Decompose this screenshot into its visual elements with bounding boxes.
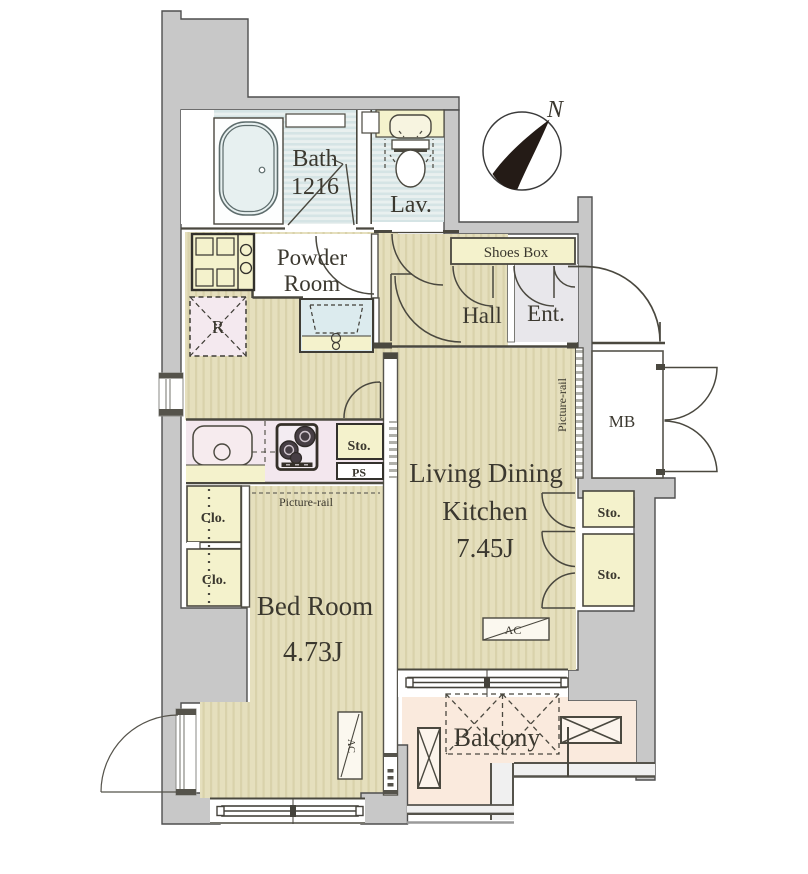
svg-text:AC: AC xyxy=(505,623,522,637)
svg-text:Lav.: Lav. xyxy=(390,192,432,218)
svg-text:Shoes Box: Shoes Box xyxy=(484,245,549,261)
svg-text:7.45J: 7.45J xyxy=(456,533,514,563)
svg-text:Room: Room xyxy=(284,271,340,296)
svg-text:AC: AC xyxy=(345,739,356,753)
svg-text:1216: 1216 xyxy=(291,174,339,200)
svg-text:Ent.: Ent. xyxy=(527,301,565,326)
svg-text:Bed Room: Bed Room xyxy=(257,591,373,621)
svg-text:Kitchen: Kitchen xyxy=(442,496,528,526)
svg-text:PS: PS xyxy=(352,466,366,480)
svg-text:4.73J: 4.73J xyxy=(283,637,343,668)
svg-text:Living Dining: Living Dining xyxy=(409,458,563,488)
svg-text:Bath: Bath xyxy=(292,146,337,172)
svg-text:Hall: Hall xyxy=(462,303,502,328)
svg-text:Clo.: Clo. xyxy=(201,511,226,526)
svg-text:Clo.: Clo. xyxy=(202,573,227,588)
svg-text:N: N xyxy=(546,97,565,123)
svg-text:MB: MB xyxy=(609,412,635,431)
svg-text:Picture-rail: Picture-rail xyxy=(555,377,569,432)
svg-text:Picture-rail: Picture-rail xyxy=(279,495,334,509)
svg-text:R: R xyxy=(212,317,224,337)
svg-text:Sto.: Sto. xyxy=(598,568,621,583)
svg-text:Balcony: Balcony xyxy=(454,723,541,752)
svg-text:Sto.: Sto. xyxy=(598,506,621,521)
svg-text:Sto.: Sto. xyxy=(348,439,371,454)
svg-text:Powder: Powder xyxy=(277,245,348,270)
